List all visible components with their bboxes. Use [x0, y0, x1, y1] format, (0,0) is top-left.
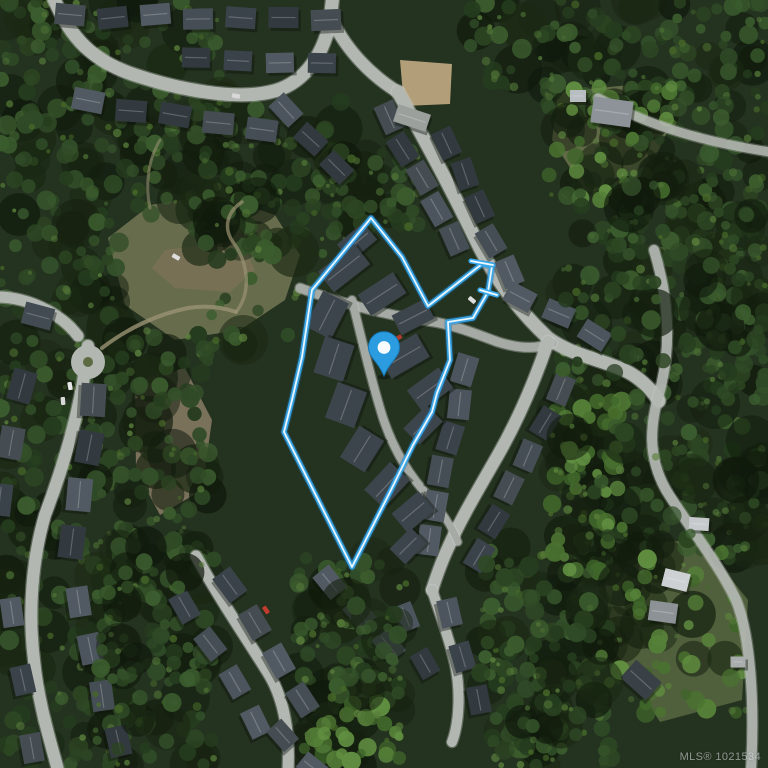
satellite-map-canvas[interactable]: [0, 0, 768, 768]
house-roof: [268, 7, 301, 31]
house-roof: [245, 117, 282, 146]
house-roof: [97, 5, 132, 32]
house-roof: [63, 585, 93, 621]
house-roof: [647, 600, 680, 627]
house-roof: [62, 477, 93, 515]
house-roof: [590, 96, 636, 131]
house-roof: [115, 99, 150, 126]
house-roof: [570, 90, 589, 105]
house-roof: [311, 9, 344, 34]
house-roof: [77, 383, 107, 420]
house-roof: [182, 47, 213, 71]
house-roof: [54, 3, 89, 30]
house-roof: [86, 679, 115, 715]
house-roof: [225, 6, 259, 32]
house-roof: [183, 8, 216, 33]
house-roof: [202, 111, 238, 139]
house-roof: [308, 53, 339, 77]
satellite-map-viewport[interactable]: MLS® 1021534: [0, 0, 768, 768]
house-roof: [140, 3, 174, 30]
car: [60, 397, 65, 405]
pin-dot: [378, 341, 391, 354]
house-roof: [266, 52, 297, 76]
house-roof: [731, 657, 749, 671]
house-roof: [223, 50, 255, 75]
house-roof: [54, 524, 86, 563]
cul-de-sac: [71, 345, 105, 379]
